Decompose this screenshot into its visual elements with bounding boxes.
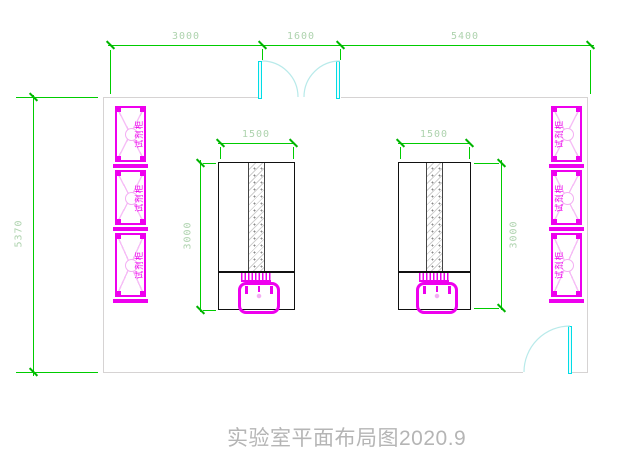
island-bench-right <box>398 162 471 310</box>
dim-label-island-width: 1500 <box>226 129 286 140</box>
cabinet-label: 试剂柜 <box>134 117 144 151</box>
dim-line-island <box>398 143 471 144</box>
dim-label-island-width: 1500 <box>404 129 464 140</box>
dim-ext-line <box>16 97 98 98</box>
dim-ext-line <box>293 147 294 159</box>
dim-line-left <box>33 95 34 376</box>
cabinet-label: 试剂柜 <box>134 181 144 215</box>
cabinet-separator <box>113 299 148 303</box>
dim-label-room-height: 5370 <box>14 214 25 254</box>
reagent-cabinet: 试剂柜 <box>115 170 146 225</box>
reagent-cabinet: 试剂柜 <box>551 170 582 225</box>
dim-ext-line <box>474 163 499 164</box>
dim-ext-line <box>262 49 263 60</box>
reagent-cabinet: 试剂柜 <box>115 106 146 162</box>
cabinet-separator <box>549 164 584 168</box>
dim-label-top-middle: 1600 <box>271 31 331 42</box>
sink-grille <box>241 273 271 282</box>
cabinet-label: 试剂柜 <box>134 248 144 282</box>
drawing-title: 实验室平面布局图2020.9 <box>227 422 466 452</box>
dim-ext-line <box>203 310 216 311</box>
double-door-left-leaf <box>258 61 262 99</box>
cabinet-separator <box>113 164 148 168</box>
reagent-cabinet: 试剂柜 <box>551 106 582 162</box>
cabinet-separator <box>113 227 148 231</box>
dim-label-island-height: 3000 <box>183 216 194 256</box>
dim-ext-line <box>400 147 401 159</box>
floorplan-canvas: 3000 1600 5400 5370 试剂柜 试剂柜 试剂柜 试剂柜 <box>0 0 619 469</box>
double-door-right-leaf <box>336 61 340 99</box>
dim-ext-line <box>203 163 216 164</box>
dim-label-island-height: 3000 <box>509 215 520 255</box>
reagent-cabinet: 试剂柜 <box>115 233 146 297</box>
cabinet-separator <box>549 227 584 231</box>
dim-line-island <box>200 160 201 312</box>
wall-top-right-segment <box>341 97 587 98</box>
bench-hatch-strip <box>248 163 265 271</box>
dim-label-top-left: 3000 <box>156 31 216 42</box>
door-swing-arcs <box>0 0 619 469</box>
dim-line-top <box>108 45 594 46</box>
dim-line-island <box>501 160 502 310</box>
cabinet-separator <box>549 299 584 303</box>
dim-label-top-right: 5400 <box>435 31 495 42</box>
dim-ext-line <box>220 147 221 159</box>
sink-basin <box>416 282 458 314</box>
side-door-leaf <box>568 326 572 374</box>
wall-right <box>587 97 588 373</box>
dim-ext-line <box>110 50 111 94</box>
cabinet-label: 试剂柜 <box>554 181 564 215</box>
reagent-cabinet: 试剂柜 <box>551 233 582 297</box>
bench-hatch-strip <box>426 163 443 271</box>
dim-ext-line <box>16 372 98 373</box>
wall-bottom-right-segment <box>570 372 587 373</box>
cabinet-label: 试剂柜 <box>554 248 564 282</box>
wall-left <box>103 97 104 373</box>
dim-ext-line <box>474 308 499 309</box>
island-bench-left <box>218 162 295 310</box>
dim-line-island <box>218 143 295 144</box>
dim-ext-line <box>590 50 591 94</box>
wall-bottom-left-segment <box>103 372 523 373</box>
dim-ext-line <box>340 49 341 60</box>
sink-grille <box>419 273 449 282</box>
wall-top-left-segment <box>103 97 259 98</box>
dim-ext-line <box>469 147 470 159</box>
sink-basin <box>238 282 280 314</box>
cabinet-label: 试剂柜 <box>554 117 564 151</box>
